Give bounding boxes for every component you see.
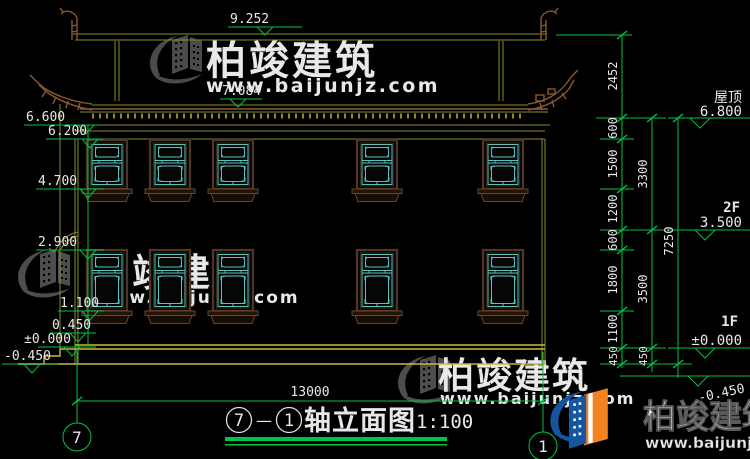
brand-logo: 柏竣建筑 www.baijunjz.com <box>551 388 750 452</box>
chain-inner-labels: 2452 600 1500 1200 600 1800 1100 450 <box>606 62 620 366</box>
dim-label: 13000 <box>290 385 329 400</box>
watermark-top: 柏竣建筑 www.baijunjz.com <box>150 35 440 97</box>
dim-label: 1100 <box>606 315 620 344</box>
dim-label: 3500 <box>636 275 650 304</box>
cad-elevation-screenshot: 柏竣建筑 www.baijunjz.com 柏竣建筑 www.baijunjz.… <box>0 0 750 459</box>
dim-label: 1800 <box>606 266 620 295</box>
ridge-ornament-left <box>60 8 77 40</box>
chain-middle-labels: 3300 3500 450 <box>636 160 650 366</box>
dim-label: 1200 <box>606 195 620 224</box>
drawing-title: 轴立面图 <box>304 405 416 437</box>
dim-label: 3300 <box>636 160 650 189</box>
level-marker-eave-center: 7.084 <box>220 84 262 107</box>
dimension-chains-right: 2452 600 1500 1200 600 1800 1100 450 330… <box>556 31 692 378</box>
level-name: 2F <box>723 200 740 216</box>
title-axis-end: 1 <box>284 411 294 431</box>
level-text: 6.200 <box>48 124 87 139</box>
level-marker-1f: 1F ±0.000 <box>668 314 750 358</box>
level-text: ±0.000 <box>691 333 742 349</box>
dim-label: 600 <box>606 117 620 139</box>
dim-label: 1500 <box>606 150 620 179</box>
level-marker-left-neg0450: -0.450 <box>2 349 58 373</box>
level-marker-2f: 2F 3.500 <box>668 200 750 240</box>
level-text: 6.600 <box>26 110 65 125</box>
title-block: 7 — 1 轴立面图 1:100 <box>225 405 473 446</box>
brand-text: 柏竣建筑 <box>643 397 750 436</box>
level-text: 0.450 <box>52 318 91 333</box>
eave-corner-right <box>528 70 578 110</box>
eave-corner-left <box>30 75 92 110</box>
title-axis-dash: — <box>256 411 272 430</box>
level-text: 6.800 <box>700 104 742 120</box>
title-underline-thin <box>225 444 447 446</box>
dim-label: 7250 <box>662 227 676 256</box>
axis-number: 7 <box>72 428 82 447</box>
level-marker-roof: 屋顶 6.800 <box>668 90 750 128</box>
level-text: 4.700 <box>38 174 77 189</box>
logo-tower-blue <box>569 395 586 449</box>
dim-label: 2452 <box>606 62 620 91</box>
drawing-scale: 1:100 <box>416 411 473 433</box>
title-underline-thick <box>225 437 447 441</box>
level-text: 3.500 <box>700 215 742 231</box>
level-text: 9.252 <box>230 12 269 27</box>
elevation-drawing: 柏竣建筑 www.baijunjz.com 柏竣建筑 www.baijunjz.… <box>0 0 750 459</box>
axis-number: 1 <box>538 437 548 456</box>
logo-tower-orange <box>584 388 608 445</box>
level-marker-ridge: 9.252 <box>228 12 302 35</box>
brand-url: www.baijunjz.com <box>645 434 750 452</box>
level-name: 1F <box>721 314 738 330</box>
windows-2f <box>82 140 528 202</box>
level-text: 2.900 <box>38 235 77 250</box>
eave-band <box>70 105 550 139</box>
ridge-ornament-right <box>541 8 558 40</box>
level-text: -0.450 <box>4 349 51 364</box>
chain-outer-labels: 7250 <box>662 227 676 256</box>
level-text: 1.100 <box>60 296 99 311</box>
level-text: 7.084 <box>222 84 261 99</box>
dim-label: 450 <box>607 346 620 366</box>
title-axis-start: 7 <box>234 411 244 431</box>
dim-label: 600 <box>606 229 620 251</box>
level-text: ±0.000 <box>24 332 71 347</box>
dim-label: 450 <box>637 346 650 366</box>
